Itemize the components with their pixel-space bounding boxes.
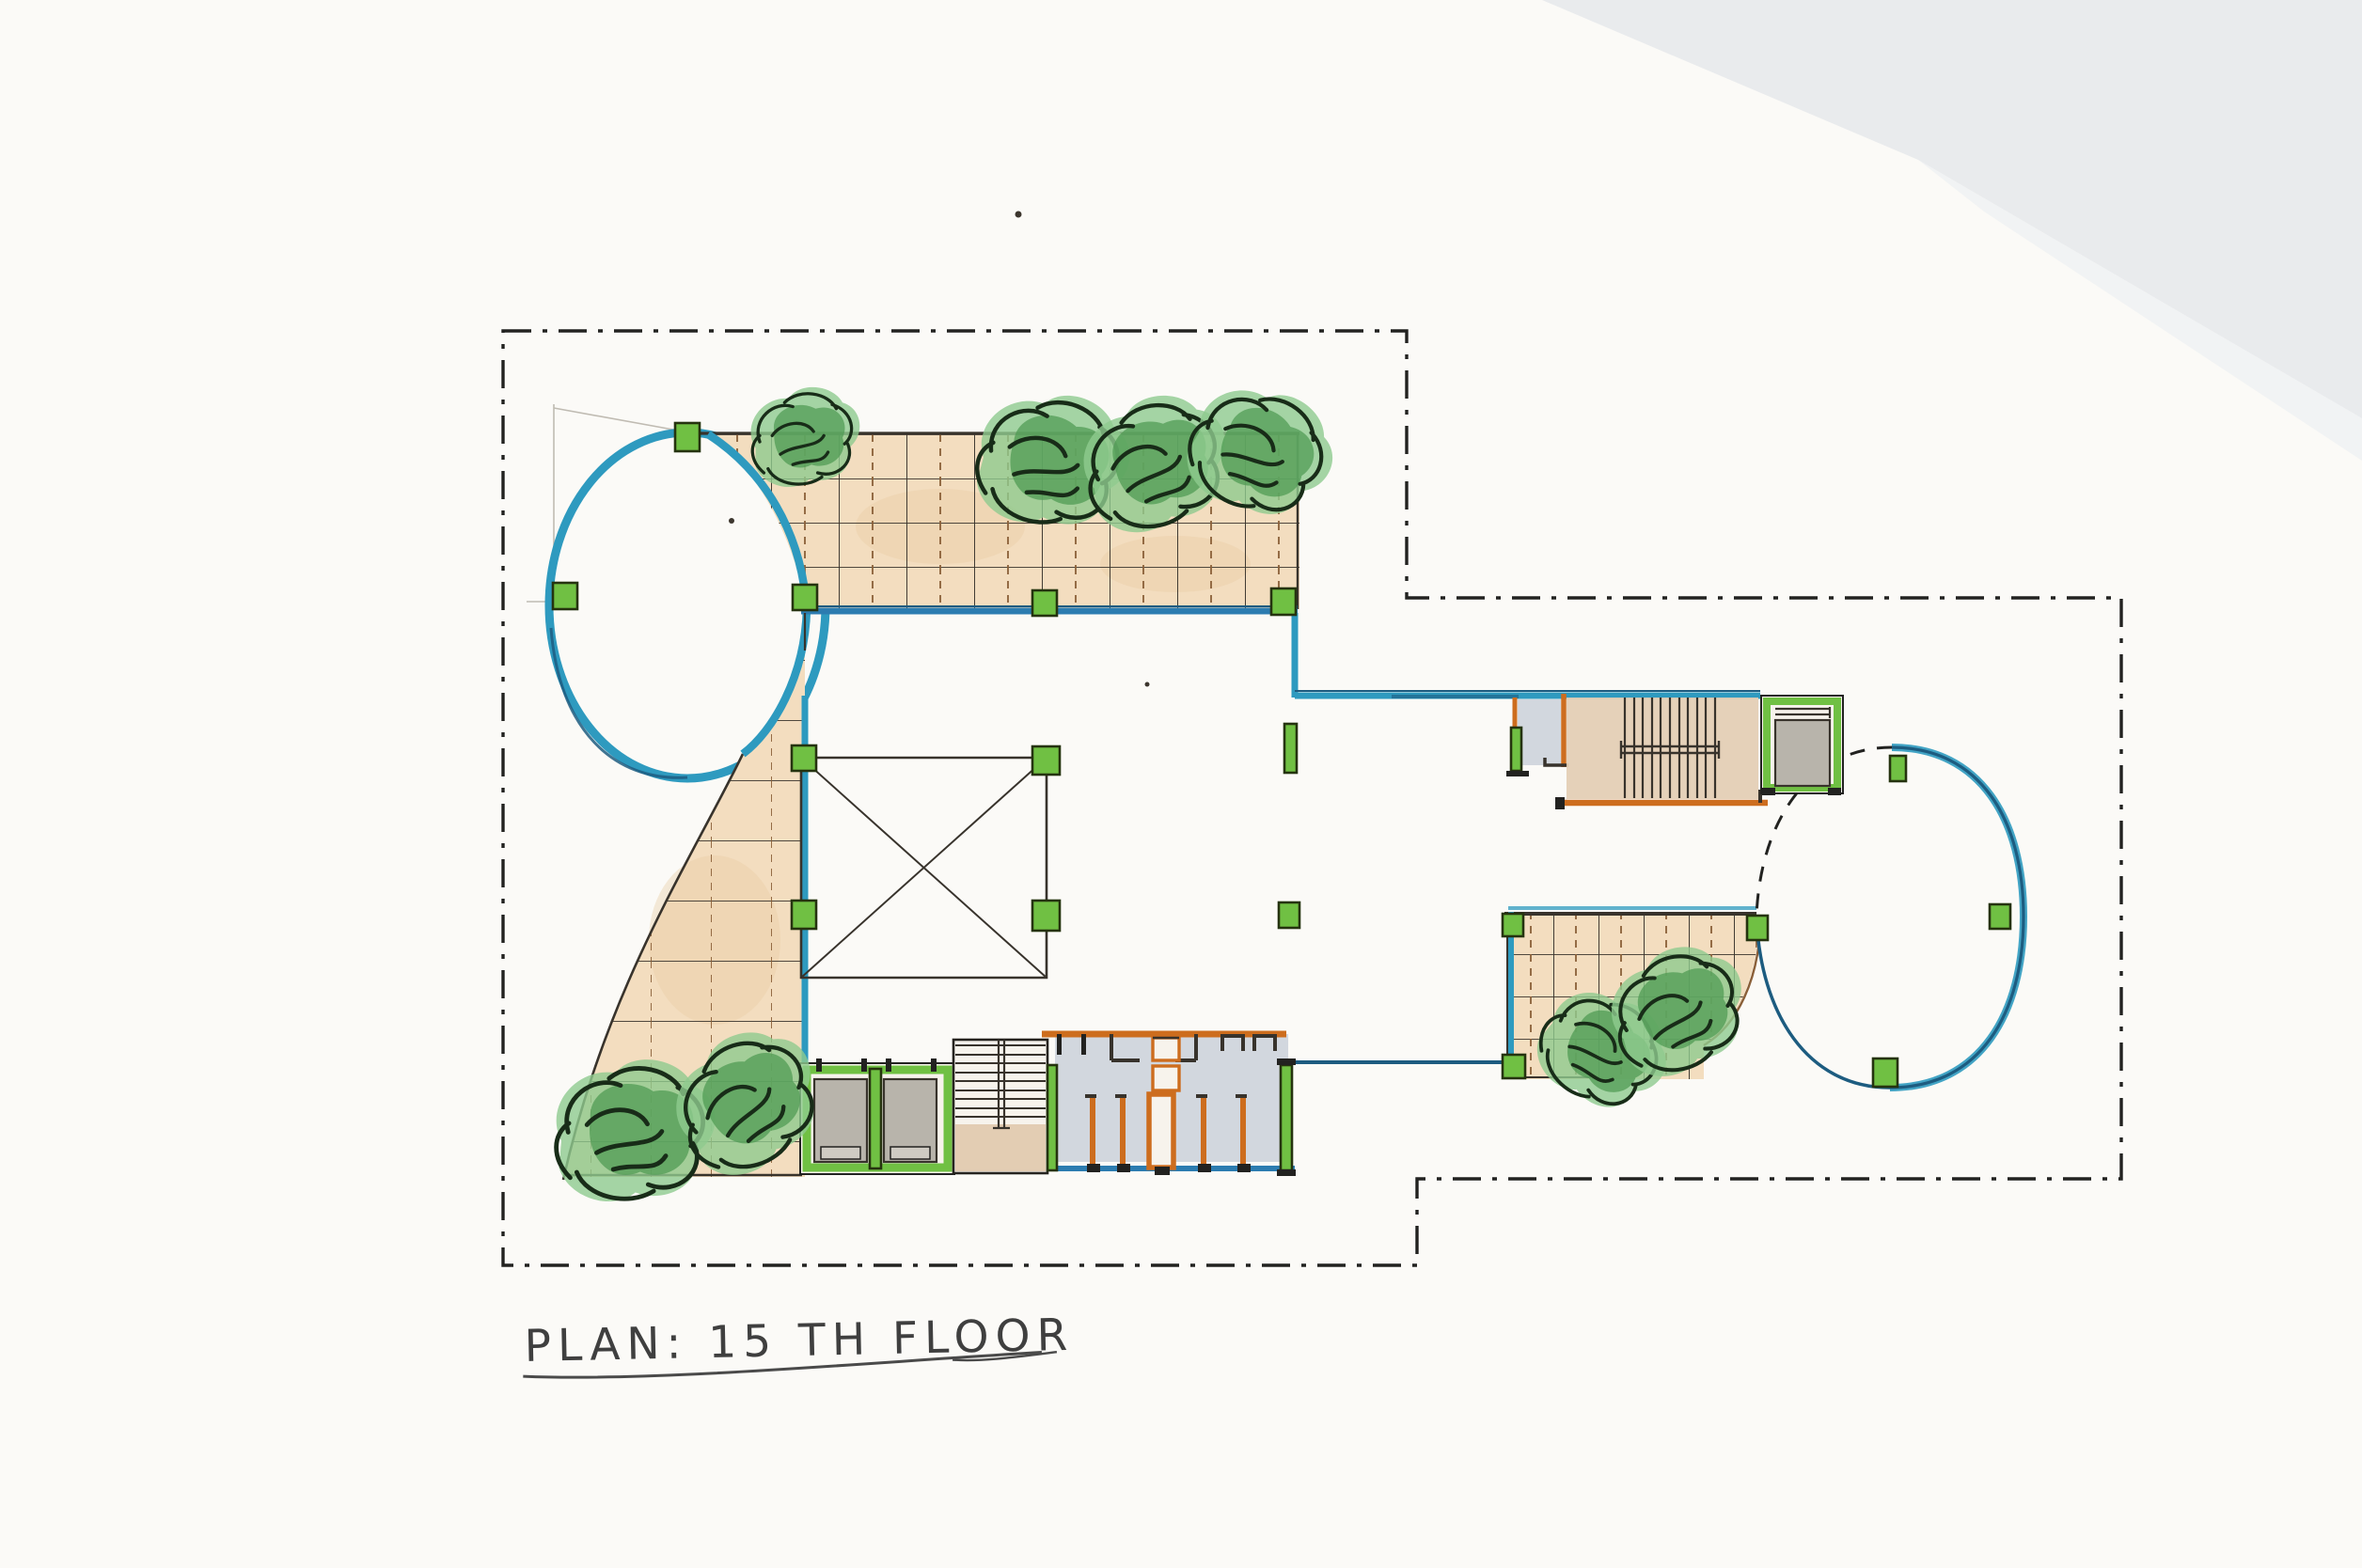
- wing-utility-room: [1506, 694, 1568, 776]
- column-marker: [792, 901, 816, 929]
- green-wall: [1047, 1065, 1057, 1170]
- wing-stair: [1555, 698, 1768, 809]
- service-rooms: [1042, 1034, 1296, 1176]
- column-marker: [1271, 588, 1296, 615]
- column-marker: [1873, 1058, 1897, 1087]
- elevator-car: [884, 1079, 937, 1162]
- wing-elevator: [1761, 696, 1843, 795]
- column-marker: [1279, 902, 1299, 928]
- column-marker: [1032, 746, 1060, 775]
- column-marker: [1890, 756, 1906, 781]
- green-wall: [1281, 1065, 1292, 1170]
- east-oval-deck: [1756, 747, 2023, 1088]
- column-marker: [553, 583, 577, 609]
- column-marker: [792, 745, 816, 771]
- floor-plan-drawing: PLAN: 15 TH FLOOR: [0, 0, 2362, 1568]
- paper-background: [0, 0, 2362, 1568]
- column-marker: [1284, 724, 1297, 773]
- column-marker: [1032, 901, 1060, 931]
- central-elevator-bank: [800, 1058, 954, 1174]
- central-stair: [953, 1040, 1047, 1173]
- column-marker: [1503, 914, 1523, 936]
- elevator-car: [1775, 720, 1830, 786]
- green-wall: [1511, 728, 1521, 771]
- column-marker: [1032, 590, 1057, 616]
- column-marker: [1990, 904, 2010, 929]
- column-marker: [675, 423, 700, 451]
- column-marker: [793, 585, 817, 610]
- column-marker: [1747, 916, 1768, 940]
- elevator-car: [814, 1079, 867, 1162]
- column-marker: [1503, 1055, 1525, 1078]
